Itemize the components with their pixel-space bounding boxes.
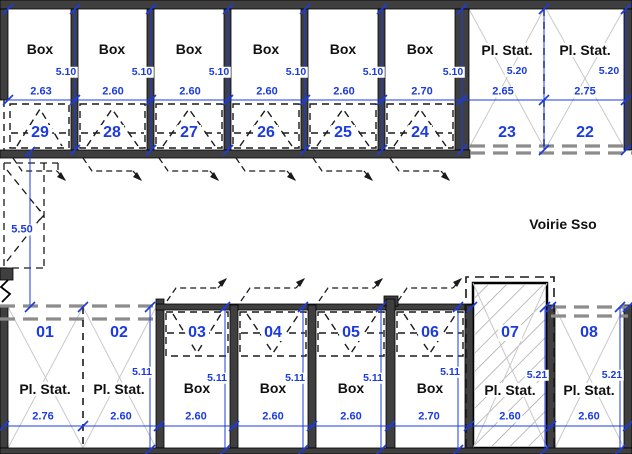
unit-23-depth-dim: 5.20 [505,66,529,77]
unit-06-depth-dim: 5.11 [438,367,462,378]
unit-06-type-label: Box [415,381,445,395]
door-swing-marks-bottom [167,279,461,301]
entrance-door-region [0,163,58,268]
entrance-depth-dim: 5.50 [9,225,34,236]
unit-29-number: 29 [28,125,52,141]
unit-29-type-label: Box [25,42,55,56]
unit-25-number: 25 [331,125,355,141]
unit-22-number: 22 [573,125,597,141]
unit-08-number: 08 [577,325,601,341]
unit-01-width-dim: 2.76 [30,412,55,423]
unit-03-depth-dim: 5.11 [205,373,229,384]
road-label: Voirie Sso [529,217,596,231]
unit-05-depth-dim: 5.11 [361,373,385,384]
unit-07-number: 07 [498,325,522,341]
unit-07-type-label: Pl. Stat. [482,383,537,397]
unit-25-depth-dim: 5.10 [361,67,385,78]
unit-02-width-dim: 2.60 [108,412,133,423]
door-swing-marks-top [13,158,449,180]
unit-23-width-dim: 2.65 [490,87,515,98]
unit-22-type-label: Pl. Stat. [557,43,612,57]
unit-02-type-label: Pl. Stat. [91,382,146,396]
unit-22-depth-dim: 5.20 [597,66,621,77]
unit-27-number: 27 [177,125,201,141]
unit-28-depth-dim: 5.10 [130,67,154,78]
unit-01-number: 01 [33,325,57,341]
unit-06-number: 06 [418,325,442,341]
unit-02-depth-dim: 5.11 [130,367,154,378]
unit-23-number: 23 [495,125,519,141]
unit-26-depth-dim: 5.10 [284,67,308,78]
unit-27-width-dim: 2.60 [177,87,202,98]
unit-04-number: 04 [261,325,285,341]
unit-26-number: 26 [254,125,278,141]
unit-03-width-dim: 2.60 [183,412,208,423]
unit-07-width-dim: 2.60 [497,412,522,423]
floor-plan: Box 29 2.63 5.10 Box 28 2.60 5.10 Box 27… [0,0,632,454]
unit-25-width-dim: 2.60 [331,87,356,98]
unit-24-number: 24 [408,125,432,141]
swing-arrowheads [57,172,462,287]
unit-23-type-label: Pl. Stat. [479,43,534,57]
unit-02-number: 02 [107,325,131,341]
unit-08-width-dim: 2.60 [576,412,601,423]
unit-04-width-dim: 2.60 [260,412,285,423]
unit-28-width-dim: 2.60 [100,87,125,98]
unit-27-type-label: Box [174,42,204,56]
unit-08-depth-dim: 5.21 [600,370,624,381]
unit-07-depth-dim: 5.21 [525,370,549,381]
unit-06-width-dim: 2.70 [416,412,441,423]
unit-05-width-dim: 2.60 [338,412,363,423]
unit-26-type-label: Box [251,42,281,56]
unit-24-width-dim: 2.70 [409,87,434,98]
unit-27-depth-dim: 5.10 [207,67,231,78]
unit-01-type-label: Pl. Stat. [17,382,72,396]
unit-28-number: 28 [100,125,124,141]
wall-break-symbol [1,280,10,302]
unit-24-type-label: Box [405,42,435,56]
unit-03-number: 03 [185,325,209,341]
unit-05-number: 05 [339,325,363,341]
unit-04-depth-dim: 5.11 [283,373,307,384]
unit-25-type-label: Box [328,42,358,56]
unit-08-type-label: Pl. Stat. [561,383,616,397]
unit-28-type-label: Box [97,42,127,56]
unit-29-depth-dim: 5.10 [54,67,78,78]
unit-22-width-dim: 2.75 [572,87,597,98]
unit-26-width-dim: 2.60 [254,87,279,98]
unit-29-width-dim: 2.63 [28,87,53,98]
unit-24-depth-dim: 5.10 [441,67,465,78]
